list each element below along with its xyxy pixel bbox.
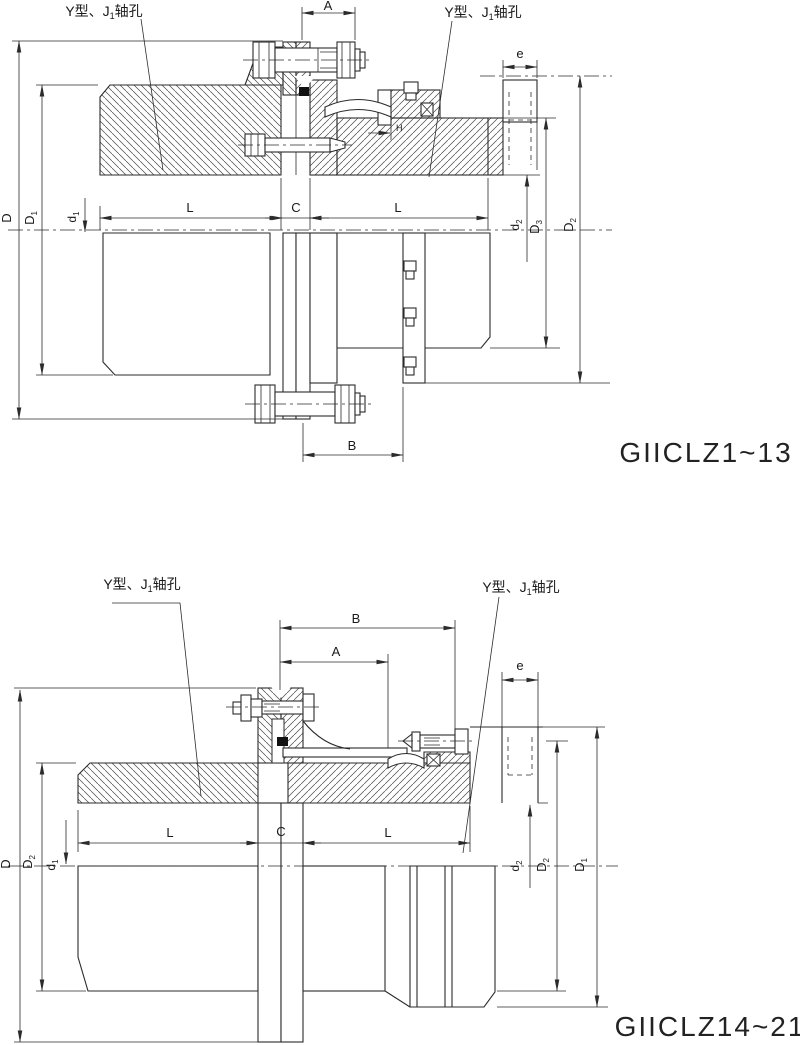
dim-label-D1-right: D1 [572,858,589,872]
dim-label-A: A [324,0,333,13]
shaft-hole-label-left: Y型、J1轴孔 [103,576,180,594]
end-plate-bolts [404,261,416,375]
dim-label-D2-right: D2 [534,858,551,872]
seal-element [421,103,433,116]
seal-element [427,754,440,766]
shaft-end-keyway [470,727,543,803]
top-figure-section-geometry [100,42,537,175]
bottom-figure-section-geometry [78,687,543,803]
dim-label-d1: d1 [65,211,81,223]
dim-label-L1: L [166,825,173,840]
dim-label-d1: d1 [44,859,60,871]
gear-coupling-drawing: Y型、J1轴孔 Y型、J1轴孔 A e H L C L B D D1 d1 d2… [0,0,800,1045]
dim-label-e: e [516,46,523,61]
lock-washer [299,87,309,96]
dim-label-L1: L [186,200,193,215]
dim-label-D3: D3 [527,220,544,234]
dim-label-d2: d2 [508,860,524,872]
dim-label-e: e [516,658,523,673]
leader-right [463,597,499,853]
figure-title-bottom: GIICLZ14~21 [615,1011,800,1042]
dim-label-D: D [0,213,14,222]
dim-label-D2-left: D2 [20,855,37,869]
dim-label-D1: D1 [22,211,39,225]
spacer-tube [283,748,407,757]
grease-screw [404,82,418,100]
dim-label-C: C [291,200,300,215]
lock-washer [277,737,288,746]
dim-label-H: H [396,123,403,133]
dim-label-A: A [332,644,341,659]
dim-label-C: C [276,824,285,839]
dim-label-B: B [348,438,357,453]
drawing-sheet: Y型、J1轴孔 Y型、J1轴孔 A e H L C L B D D1 d1 d2… [0,0,800,1045]
bottom-figure-exterior-geometry [78,803,495,1042]
dim-label-D: D [0,859,13,868]
dim-label-d2: d2 [508,219,524,231]
dim-label-D2: D2 [561,218,578,232]
figure-title-top: GIICLZ1~13 [619,437,792,468]
shaft-hole-label-right: Y型、J1轴孔 [482,579,559,597]
shaft-hole-label-left: Y型、J1轴孔 [65,3,142,21]
shaft-end-keyway [503,80,537,170]
figure-giiclz1-13: Y型、J1轴孔 Y型、J1轴孔 A e H L C L B D D1 d1 d2… [0,0,793,468]
figure-giiclz14-21: Y型、J1轴孔 Y型、J1轴孔 B A e L C L D D2 d1 d2 D… [0,576,800,1042]
gear-ring-bolt [403,729,468,754]
dim-label-L2: L [394,200,401,215]
shaft-hole-label-right: Y型、J1轴孔 [444,4,521,22]
dim-label-B: B [352,611,361,626]
dim-label-L2: L [384,825,391,840]
